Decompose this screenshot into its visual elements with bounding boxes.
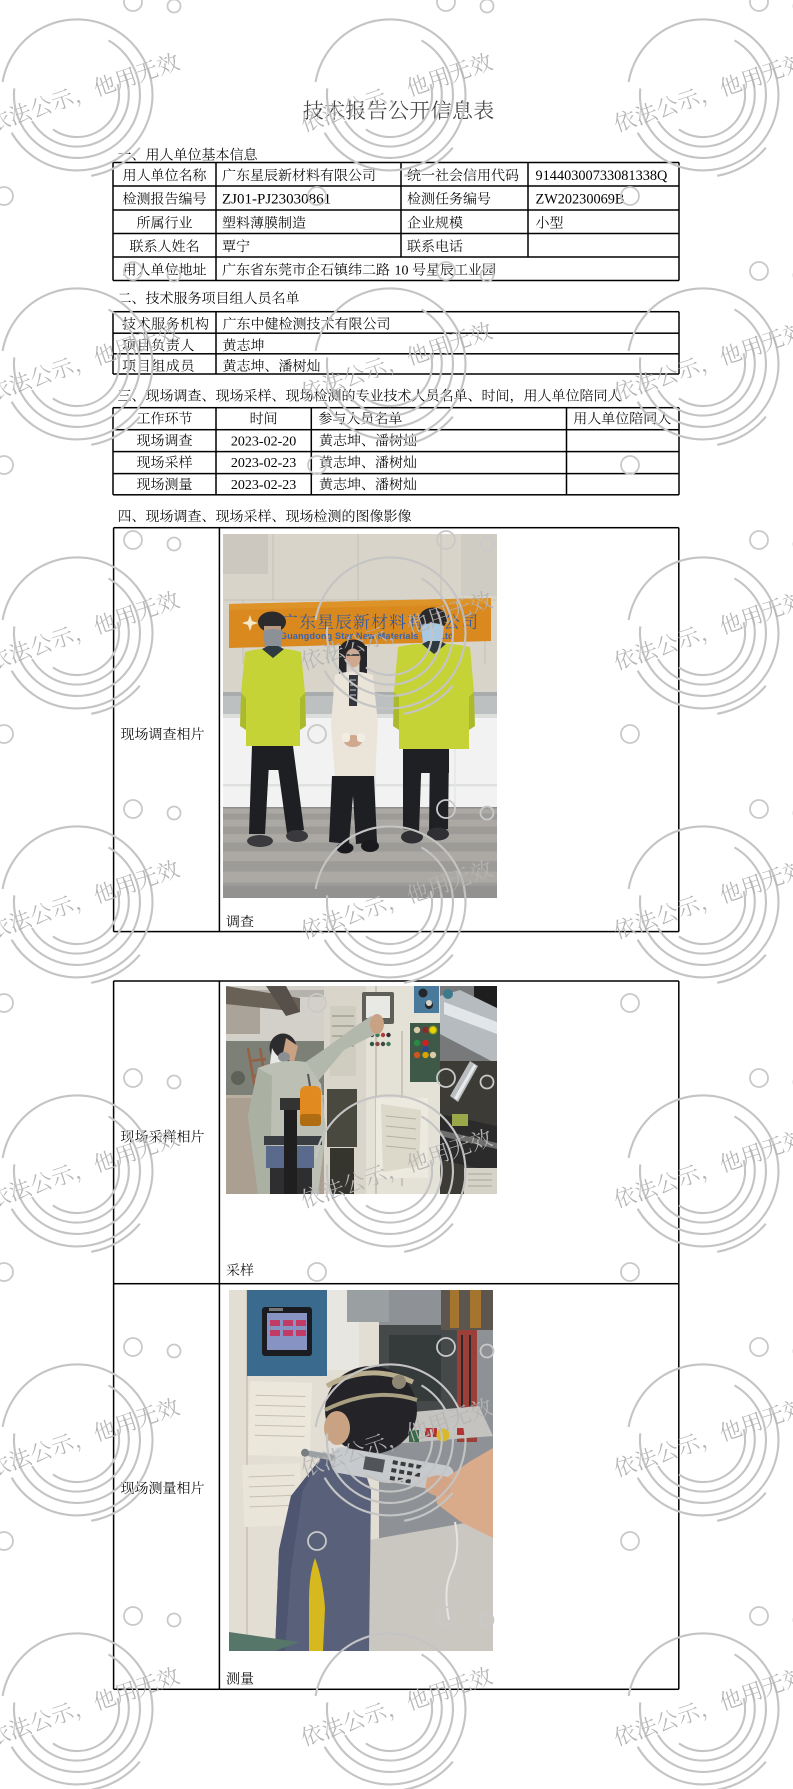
svg-text:2023-02-23: 2023-02-23 bbox=[231, 456, 296, 471]
svg-text:2023-02-20: 2023-02-20 bbox=[231, 434, 296, 449]
svg-text:10: 10 bbox=[395, 264, 409, 279]
svg-text:91440300733081338Q: 91440300733081338Q bbox=[536, 168, 669, 184]
svg-text:ZW20230069B: ZW20230069B bbox=[536, 192, 625, 208]
svg-text:2023-02-23: 2023-02-23 bbox=[231, 478, 296, 493]
